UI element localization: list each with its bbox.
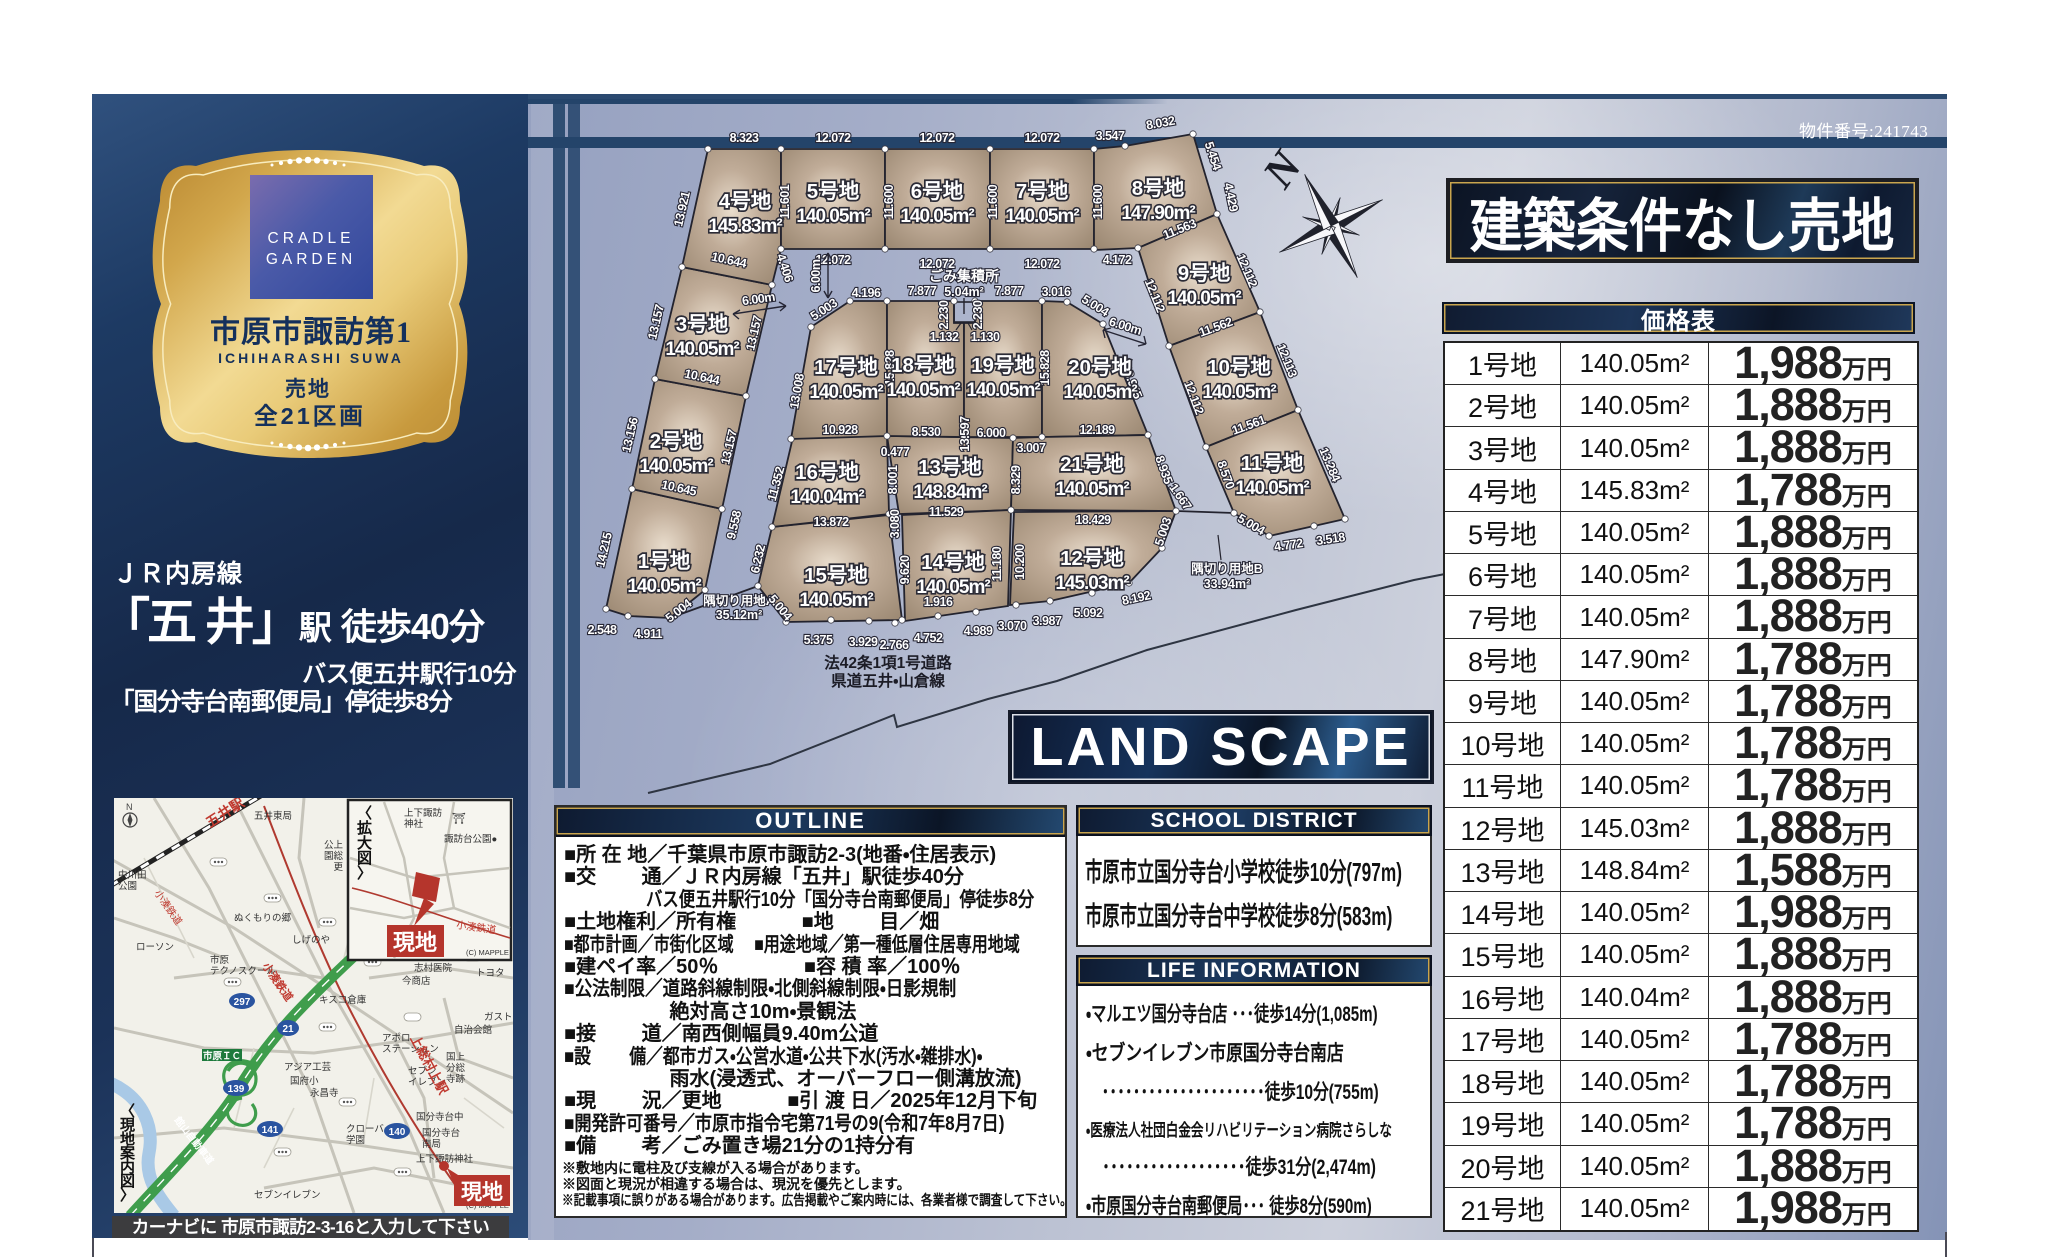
svg-text:3号地: 3号地 [676, 312, 729, 336]
svg-text:永昌寺: 永昌寺 [310, 1087, 339, 1099]
svg-text:140.05m²: 140.05m² [916, 577, 990, 598]
svg-text:140.05m²: 140.05m² [639, 456, 713, 477]
svg-text:⛩: ⛩ [452, 812, 466, 825]
svg-text:上下諏訪: 上下諏訪 [404, 807, 443, 819]
svg-text:18号地: 18号地 [891, 353, 955, 377]
svg-text:国上: 国上 [446, 1052, 466, 1063]
svg-text:学園: 学園 [346, 1134, 365, 1146]
svg-text:隅切り用地B: 隅切り用地B [1191, 561, 1263, 576]
svg-text:3.070: 3.070 [998, 619, 1027, 633]
svg-text:法42条1項1号道路: 法42条1項1号道路 [824, 653, 952, 672]
svg-text:3.987: 3.987 [1033, 614, 1062, 628]
svg-text:N: N [126, 802, 133, 812]
svg-text:4.772: 4.772 [1273, 536, 1304, 554]
svg-text:国分寺台中: 国分寺台中 [416, 1111, 464, 1123]
svg-text:140.05m²: 140.05m² [627, 576, 701, 597]
svg-text:12号地: 12号地 [1060, 546, 1124, 570]
svg-text:17号地: 17号地 [814, 355, 878, 379]
svg-text:140.05m²: 140.05m² [966, 380, 1040, 401]
svg-text:しげのや: しげのや [292, 935, 330, 946]
svg-text:8号地: 8号地 [1132, 176, 1185, 200]
svg-text:35.12m²: 35.12m² [716, 608, 763, 622]
svg-text:公園: 公園 [118, 881, 137, 892]
svg-text:297: 297 [234, 997, 251, 1008]
svg-text:13.597: 13.597 [958, 416, 972, 452]
svg-text:現地: 現地 [461, 1180, 503, 1204]
svg-text:3.518: 3.518 [1315, 530, 1346, 548]
svg-text:14号地: 14号地 [921, 550, 985, 574]
svg-text:全21区画: 全21区画 [254, 403, 366, 429]
svg-text:12.072: 12.072 [815, 131, 851, 145]
svg-text:南局: 南局 [422, 1138, 441, 1150]
svg-text:15号地: 15号地 [804, 563, 868, 587]
svg-text:140.05m²: 140.05m² [1063, 382, 1137, 403]
svg-text:13.872: 13.872 [813, 515, 849, 529]
svg-text:5.092: 5.092 [1074, 606, 1103, 620]
svg-text:11.600: 11.600 [882, 184, 896, 219]
svg-text:14.215: 14.215 [593, 531, 615, 569]
svg-text:9.620: 9.620 [898, 555, 912, 584]
svg-text:園総: 園総 [324, 850, 344, 862]
svg-text:ぬくもりの郷: ぬくもりの郷 [234, 912, 292, 924]
svg-text:13.921: 13.921 [671, 190, 693, 228]
svg-text:自治会館: 自治会館 [454, 1024, 493, 1036]
svg-text:2.548: 2.548 [588, 623, 617, 637]
svg-text:7.877: 7.877 [908, 284, 937, 298]
svg-text:12.072: 12.072 [1024, 131, 1060, 145]
svg-text:4.196: 4.196 [852, 286, 881, 300]
svg-text:140.05m²: 140.05m² [900, 206, 974, 227]
svg-text:140.04m²: 140.04m² [790, 487, 864, 508]
svg-text:〈拡大図〉: 〈拡大図〉 [357, 804, 372, 882]
svg-text:今商店: 今商店 [402, 975, 431, 987]
svg-text:13.157: 13.157 [645, 303, 667, 341]
svg-text:市原市諏訪第1: 市原市諏訪第1 [210, 315, 412, 349]
svg-text:市原ＩＣ: 市原ＩＣ [203, 1050, 241, 1062]
svg-text:CRADLE: CRADLE [268, 230, 355, 247]
svg-text:8.530: 8.530 [912, 425, 941, 439]
svg-text:140.05m²: 140.05m² [1055, 479, 1129, 500]
svg-text:ガスト: ガスト [484, 1012, 513, 1023]
svg-text:中川田: 中川田 [118, 869, 147, 881]
svg-text:140.05m²: 140.05m² [1202, 382, 1276, 403]
svg-text:141: 141 [262, 1125, 279, 1136]
svg-text:6号地: 6号地 [911, 179, 964, 203]
svg-text:11号地: 11号地 [1241, 451, 1304, 475]
svg-text:33.94m²: 33.94m² [1204, 577, 1251, 591]
svg-text:140.05m²: 140.05m² [665, 339, 739, 360]
svg-text:分総: 分総 [446, 1062, 466, 1074]
svg-text:4.989: 4.989 [964, 624, 993, 638]
svg-text:ICHIHARASHI SUWA: ICHIHARASHI SUWA [218, 350, 404, 366]
svg-text:2.230: 2.230 [971, 300, 985, 329]
svg-text:売地: 売地 [285, 377, 331, 401]
svg-text:ローソン: ローソン [136, 942, 174, 953]
svg-text:〈現地案内図〉: 〈現地案内図〉 [119, 1102, 136, 1204]
svg-text:11.180: 11.180 [990, 546, 1004, 581]
svg-text:11.600: 11.600 [1091, 184, 1105, 219]
svg-text:16号地: 16号地 [795, 460, 859, 484]
svg-text:140.05m²: 140.05m² [796, 206, 870, 227]
svg-text:五井東局: 五井東局 [254, 810, 292, 822]
svg-text:1号地: 1号地 [638, 549, 691, 573]
svg-text:更: 更 [324, 862, 344, 873]
svg-text:4.172: 4.172 [1103, 253, 1132, 267]
svg-text:4号地: 4号地 [719, 189, 772, 213]
svg-text:12.072: 12.072 [919, 257, 955, 271]
svg-text:アジア工芸: アジア工芸 [284, 1061, 332, 1073]
svg-text:2.230: 2.230 [937, 300, 951, 329]
svg-text:11.529: 11.529 [929, 505, 964, 519]
svg-text:11.600: 11.600 [986, 184, 1000, 219]
svg-text:公上: 公上 [324, 840, 344, 851]
svg-text:国府小: 国府小 [290, 1076, 319, 1087]
svg-text:4.752: 4.752 [914, 631, 943, 645]
svg-text:12.072: 12.072 [919, 131, 955, 145]
svg-text:5.04m²: 5.04m² [944, 285, 984, 299]
svg-text:139: 139 [228, 1084, 245, 1095]
svg-text:7.877: 7.877 [995, 284, 1024, 298]
svg-text:6.00m: 6.00m [809, 259, 823, 292]
svg-text:18.429: 18.429 [1075, 513, 1111, 527]
svg-text:145.83m²: 145.83m² [708, 216, 782, 237]
svg-text:1.130: 1.130 [971, 330, 1000, 344]
svg-text:8.329: 8.329 [1009, 465, 1023, 494]
svg-text:隅切り用地A: 隅切り用地A [703, 593, 775, 608]
svg-text:志村医院: 志村医院 [414, 962, 453, 974]
svg-text:寺跡: 寺跡 [446, 1073, 466, 1085]
svg-text:諏訪台公園●: 諏訪台公園● [444, 833, 497, 845]
svg-text:6.000: 6.000 [977, 426, 1006, 440]
svg-text:12.189: 12.189 [1079, 423, 1115, 437]
svg-text:9.558: 9.558 [724, 509, 744, 541]
svg-text:10.928: 10.928 [822, 423, 858, 437]
svg-text:2.766: 2.766 [880, 638, 909, 652]
svg-text:トヨタ: トヨタ [476, 968, 505, 979]
svg-text:3.007: 3.007 [1017, 441, 1046, 455]
svg-text:10号地: 10号地 [1207, 355, 1271, 379]
svg-text:キスコ倉庫: キスコ倉庫 [319, 994, 367, 1006]
svg-text:市原: 市原 [210, 954, 230, 966]
svg-text:140.05m²: 140.05m² [1235, 478, 1309, 499]
svg-text:140.05m²: 140.05m² [809, 382, 883, 403]
svg-text:国分寺台: 国分寺台 [422, 1127, 461, 1139]
svg-text:10.200: 10.200 [1013, 544, 1027, 580]
svg-text:19号地: 19号地 [971, 353, 1035, 377]
svg-text:7号地: 7号地 [1016, 179, 1069, 203]
svg-text:2号地: 2号地 [650, 429, 703, 453]
svg-text:(C) MAPPLE: (C) MAPPLE [466, 948, 509, 957]
svg-text:8.001: 8.001 [886, 465, 900, 494]
svg-text:12.072: 12.072 [1024, 257, 1060, 271]
svg-text:セブンイレブン: セブンイレブン [254, 1189, 321, 1201]
svg-text:3.080: 3.080 [888, 509, 902, 538]
svg-text:0.477: 0.477 [881, 445, 910, 459]
svg-text:1.132: 1.132 [930, 330, 959, 344]
svg-text:5号地: 5号地 [807, 179, 860, 203]
svg-text:21: 21 [282, 1024, 294, 1035]
svg-text:3.016: 3.016 [1042, 285, 1071, 299]
svg-text:県道五井・山倉線: 県道五井・山倉線 [831, 671, 945, 690]
svg-text:現地: 現地 [393, 930, 437, 955]
svg-text:15.828: 15.828 [1038, 350, 1052, 386]
svg-text:148.84m²: 148.84m² [913, 482, 987, 503]
svg-text:8.323: 8.323 [730, 131, 759, 145]
svg-text:140.05m²: 140.05m² [1005, 206, 1079, 227]
svg-text:13.156: 13.156 [619, 416, 641, 454]
svg-text:140: 140 [389, 1127, 406, 1138]
svg-text:13号地: 13号地 [918, 455, 982, 479]
svg-text:3.929: 3.929 [849, 635, 878, 649]
svg-text:9号地: 9号地 [1178, 261, 1231, 285]
svg-text:20号地: 20号地 [1068, 355, 1132, 379]
svg-text:140.05m²: 140.05m² [886, 380, 960, 401]
svg-text:アポロ: アポロ [382, 1033, 411, 1044]
svg-text:神社: 神社 [404, 818, 424, 830]
svg-text:GARDEN: GARDEN [266, 251, 356, 268]
svg-text:21号地: 21号地 [1060, 452, 1124, 476]
svg-text:11.601: 11.601 [778, 184, 792, 219]
svg-text:5.375: 5.375 [804, 633, 833, 647]
svg-text:140.05m²: 140.05m² [799, 590, 873, 611]
svg-text:140.05m²: 140.05m² [1167, 288, 1241, 309]
svg-text:145.03m²: 145.03m² [1055, 573, 1129, 594]
svg-text:4.911: 4.911 [634, 627, 663, 641]
svg-text:147.90m²: 147.90m² [1121, 203, 1195, 224]
svg-text:3.547: 3.547 [1096, 129, 1125, 143]
